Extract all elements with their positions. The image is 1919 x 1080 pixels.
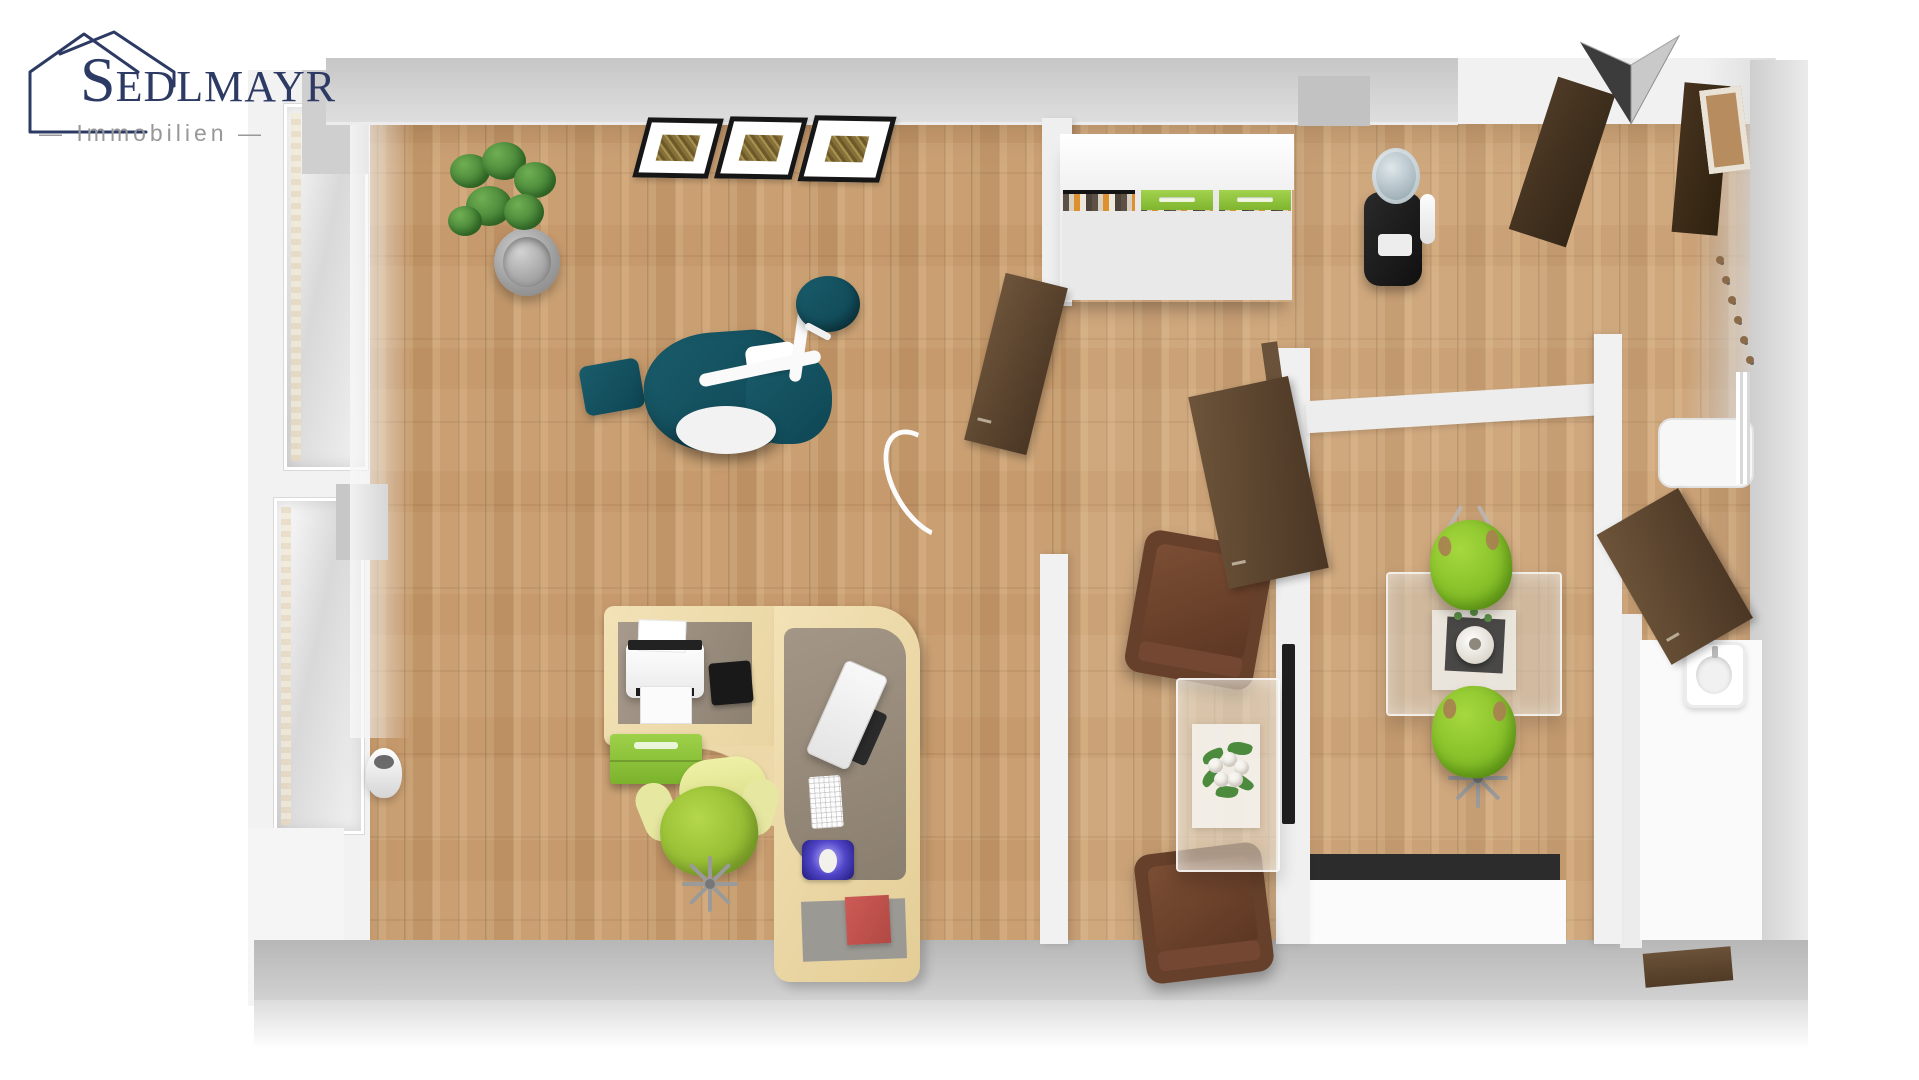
north-arrow-icon — [1574, 32, 1684, 127]
brand-tagline: — Immobilien — — [28, 120, 276, 147]
washroom-wall — [1620, 614, 1642, 948]
plant-pot — [494, 228, 560, 296]
top-wall — [326, 58, 1458, 125]
coat-hooks — [1714, 254, 1770, 374]
foliage — [448, 206, 482, 236]
vase-flowers — [1448, 608, 1504, 634]
wall-pillar — [1298, 76, 1370, 126]
meeting-room-right-wall — [1594, 334, 1622, 944]
armrest-cutout — [1443, 698, 1457, 719]
hook — [1716, 256, 1724, 264]
sprig — [1454, 612, 1462, 620]
shelf-column — [1141, 190, 1213, 300]
wall-pier — [336, 484, 388, 560]
hook — [1722, 276, 1730, 284]
green-drawer — [1141, 190, 1213, 210]
water-cooler — [1362, 148, 1440, 288]
foliage — [504, 194, 544, 230]
bottom-wall-outer-face — [254, 1000, 1808, 1046]
black-tablet — [708, 660, 754, 706]
shelf-column — [1063, 190, 1135, 300]
white-flower — [1208, 758, 1223, 773]
foliage — [514, 162, 556, 198]
dispenser-slot — [1378, 234, 1412, 256]
black-wall-panel — [1282, 644, 1295, 824]
floor-plan — [0, 0, 1919, 1080]
waste-bin — [366, 748, 402, 798]
bottom-wall — [254, 940, 1808, 1002]
shelf-column — [1219, 190, 1291, 300]
dark-counter — [1308, 854, 1560, 880]
white-floor — [1308, 880, 1566, 944]
picture-art — [739, 135, 784, 162]
red-book — [845, 895, 891, 945]
washroom — [1620, 614, 1766, 948]
hook — [1734, 316, 1742, 324]
radiator — [1736, 372, 1750, 484]
shelf-body — [1062, 190, 1292, 300]
dental-chair-unit — [560, 268, 900, 478]
water-bottle — [1372, 148, 1420, 204]
sprig — [1478, 612, 1485, 619]
brand-initial: S — [80, 44, 116, 115]
printer — [626, 642, 704, 698]
brand-wordmark: SEDLMAYR — [80, 48, 336, 112]
mouse — [819, 849, 837, 873]
binder-row — [1063, 190, 1135, 211]
floorplan-rendering: SEDLMAYR — Immobilien — — [0, 0, 1919, 1080]
printer-paper — [640, 686, 692, 724]
partition-wall — [1040, 554, 1068, 944]
wall-picture — [714, 116, 808, 179]
company-logo: SEDLMAYR — Immobilien — — [22, 26, 292, 150]
white-flower — [1214, 772, 1229, 787]
brand-rest: EDLMAYR — [116, 62, 337, 111]
dental-chair-legrest — [578, 357, 646, 417]
green-drawer — [1219, 190, 1291, 210]
hook — [1740, 336, 1748, 344]
picture-art — [825, 136, 870, 163]
hook — [1746, 356, 1754, 364]
glass-coffee-table — [1176, 678, 1280, 872]
armrest-cutout — [1493, 701, 1507, 722]
picture-art — [656, 135, 701, 162]
white-flower — [1228, 772, 1243, 787]
office-chair — [634, 756, 774, 916]
flower-bouquet — [1200, 742, 1256, 808]
left-window-wall — [248, 70, 370, 1006]
chair-legs — [682, 856, 738, 912]
kitchenette-area — [1308, 854, 1566, 944]
armrest-cutout — [1485, 530, 1500, 551]
corner-desk — [604, 606, 934, 996]
sprig — [1462, 610, 1469, 617]
dental-chair-base — [676, 406, 776, 454]
filing-shelf — [1060, 134, 1294, 302]
wall-picture — [632, 117, 724, 178]
sprig — [1484, 614, 1492, 622]
cup-dispenser — [1420, 194, 1435, 244]
shelf-top-surface — [1060, 134, 1294, 190]
mousepad — [802, 840, 854, 880]
printer-slot — [628, 640, 702, 650]
armrest-cutout — [1437, 536, 1452, 557]
keyboard — [808, 775, 844, 829]
hook — [1728, 296, 1736, 304]
